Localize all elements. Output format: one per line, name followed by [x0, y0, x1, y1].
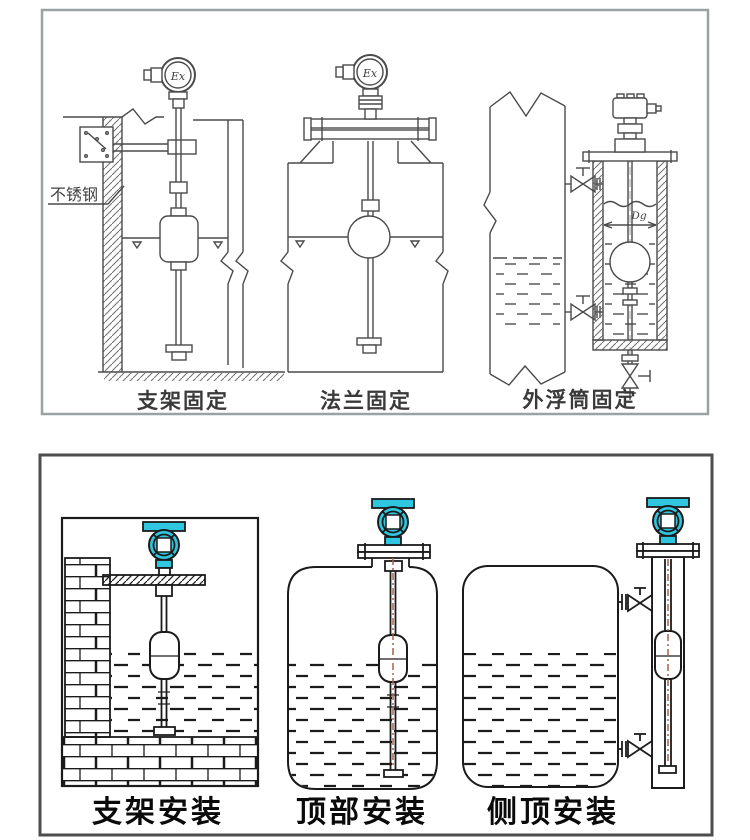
caption-flange-fixed: 法兰固定 — [320, 389, 412, 413]
float-capsule — [160, 216, 198, 262]
ex-marking: Ex — [362, 67, 378, 80]
label-dg: Dg — [630, 210, 646, 222]
diagram-image: 不锈钢 Ex 支架固定 — [0, 0, 750, 840]
float-level-sensor-installation-figure: 不锈钢 Ex 支架固定 — [0, 0, 750, 840]
support-shelf — [103, 575, 205, 585]
flange — [637, 544, 699, 551]
brick-platform — [62, 737, 258, 786]
ex-marking: Ex — [170, 70, 186, 83]
caption-external-chamber-fixed: 外浮筒固定 — [523, 388, 638, 412]
label-stainless-steel: 不锈钢 — [50, 186, 98, 204]
caption-side-top-install: 侧顶安装 — [487, 796, 619, 829]
caption-bracket-install: 支架安装 — [92, 796, 224, 829]
flange — [358, 545, 430, 552]
float-ball — [610, 242, 650, 282]
caption-bracket-fixed: 支架固定 — [137, 389, 229, 413]
caption-top-install: 顶部安装 — [296, 795, 428, 829]
float-ball — [348, 216, 390, 258]
